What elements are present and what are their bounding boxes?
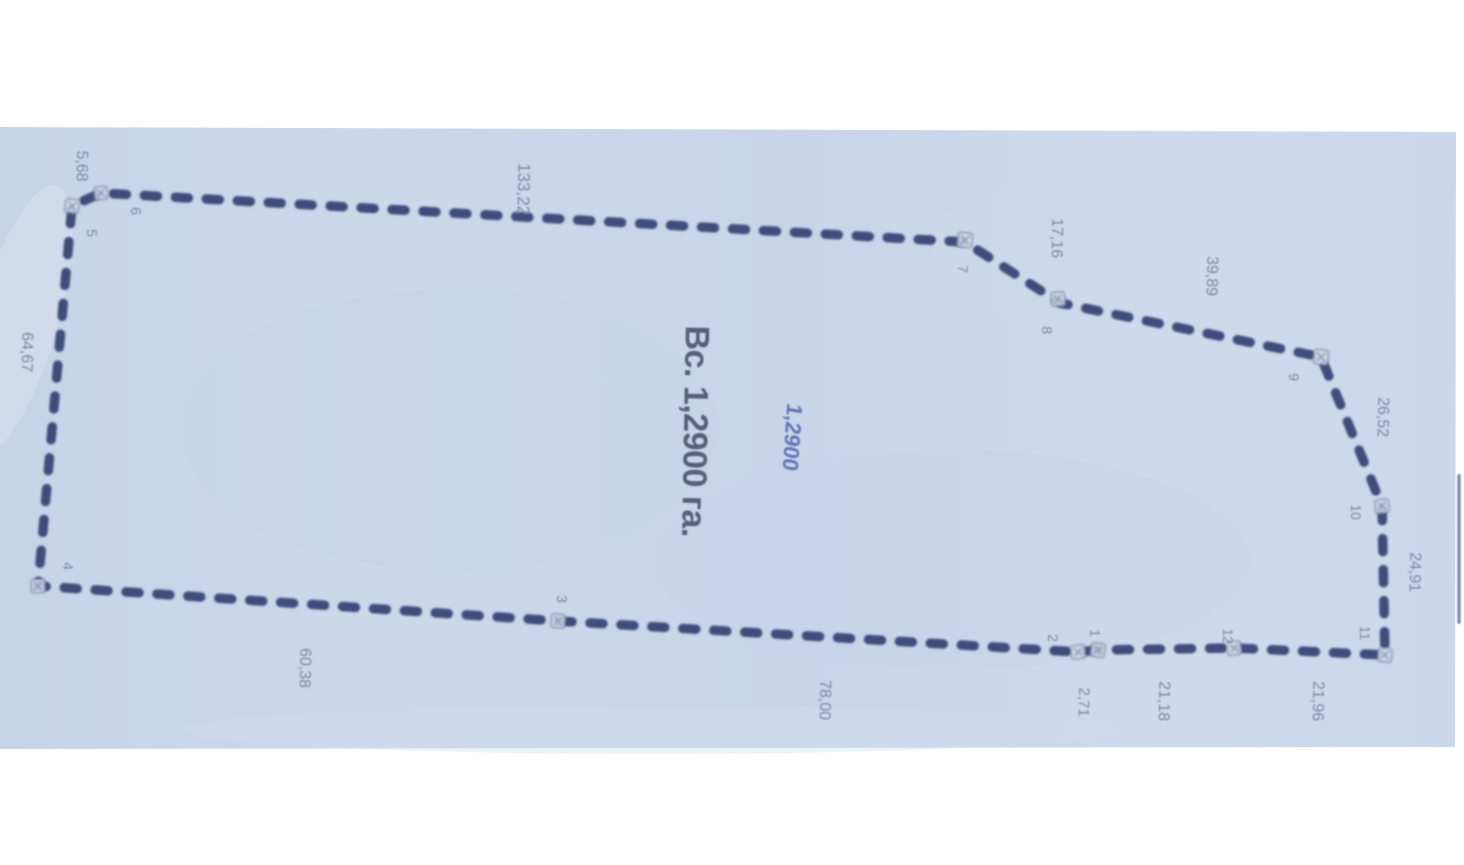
svg-text:7: 7 [955,265,971,273]
svg-text:6: 6 [128,207,144,215]
svg-text:39,89: 39,89 [1203,256,1221,296]
svg-text:10: 10 [1348,504,1364,520]
svg-text:5: 5 [84,229,100,237]
svg-text:78,00: 78,00 [816,680,834,720]
svg-text:8: 8 [1039,326,1055,334]
svg-text:21,96: 21,96 [1309,681,1327,721]
svg-text:64,67: 64,67 [18,332,36,372]
svg-text:1,2900: 1,2900 [778,402,807,473]
svg-text:21,18: 21,18 [1155,681,1173,721]
svg-text:Вс. 1,2900 га.: Вс. 1,2900 га. [674,325,716,537]
svg-text:3: 3 [554,595,570,603]
svg-text:9: 9 [1286,373,1302,381]
svg-text:24,91: 24,91 [1406,552,1424,592]
svg-text:2: 2 [1045,634,1061,642]
svg-text:5,68: 5,68 [73,150,91,182]
svg-text:12: 12 [1220,628,1236,644]
svg-text:11: 11 [1357,626,1373,641]
svg-text:1: 1 [1087,629,1103,637]
svg-text:2,71: 2,71 [1075,687,1093,716]
svg-text:60,38: 60,38 [296,648,314,688]
svg-text:133,22: 133,22 [514,163,534,215]
svg-text:26,52: 26,52 [1374,397,1392,437]
svg-text:17,16: 17,16 [1048,218,1066,258]
svg-text:4: 4 [60,562,76,570]
